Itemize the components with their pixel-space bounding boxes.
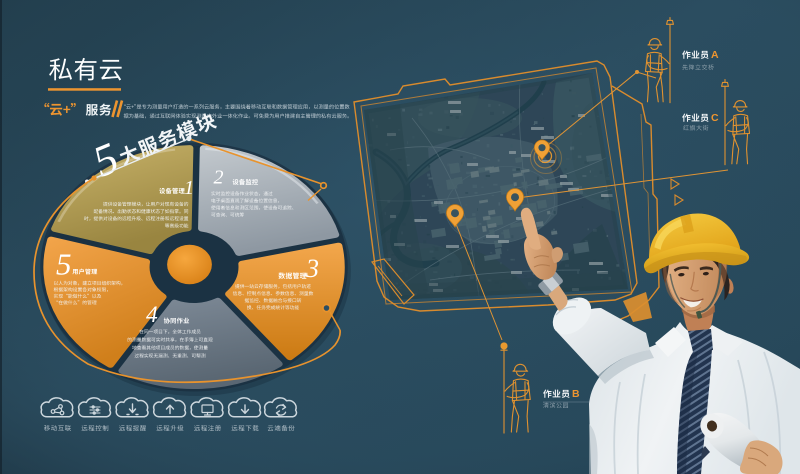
svg-text:A: A [711,49,719,61]
svg-text:3: 3 [305,254,319,283]
svg-text:C: C [711,112,719,124]
svg-text:2: 2 [214,167,224,189]
svg-text:1: 1 [184,177,194,199]
svg-text:5: 5 [56,246,72,281]
svg-text:B: B [572,388,580,400]
svg-text:4: 4 [146,302,158,328]
